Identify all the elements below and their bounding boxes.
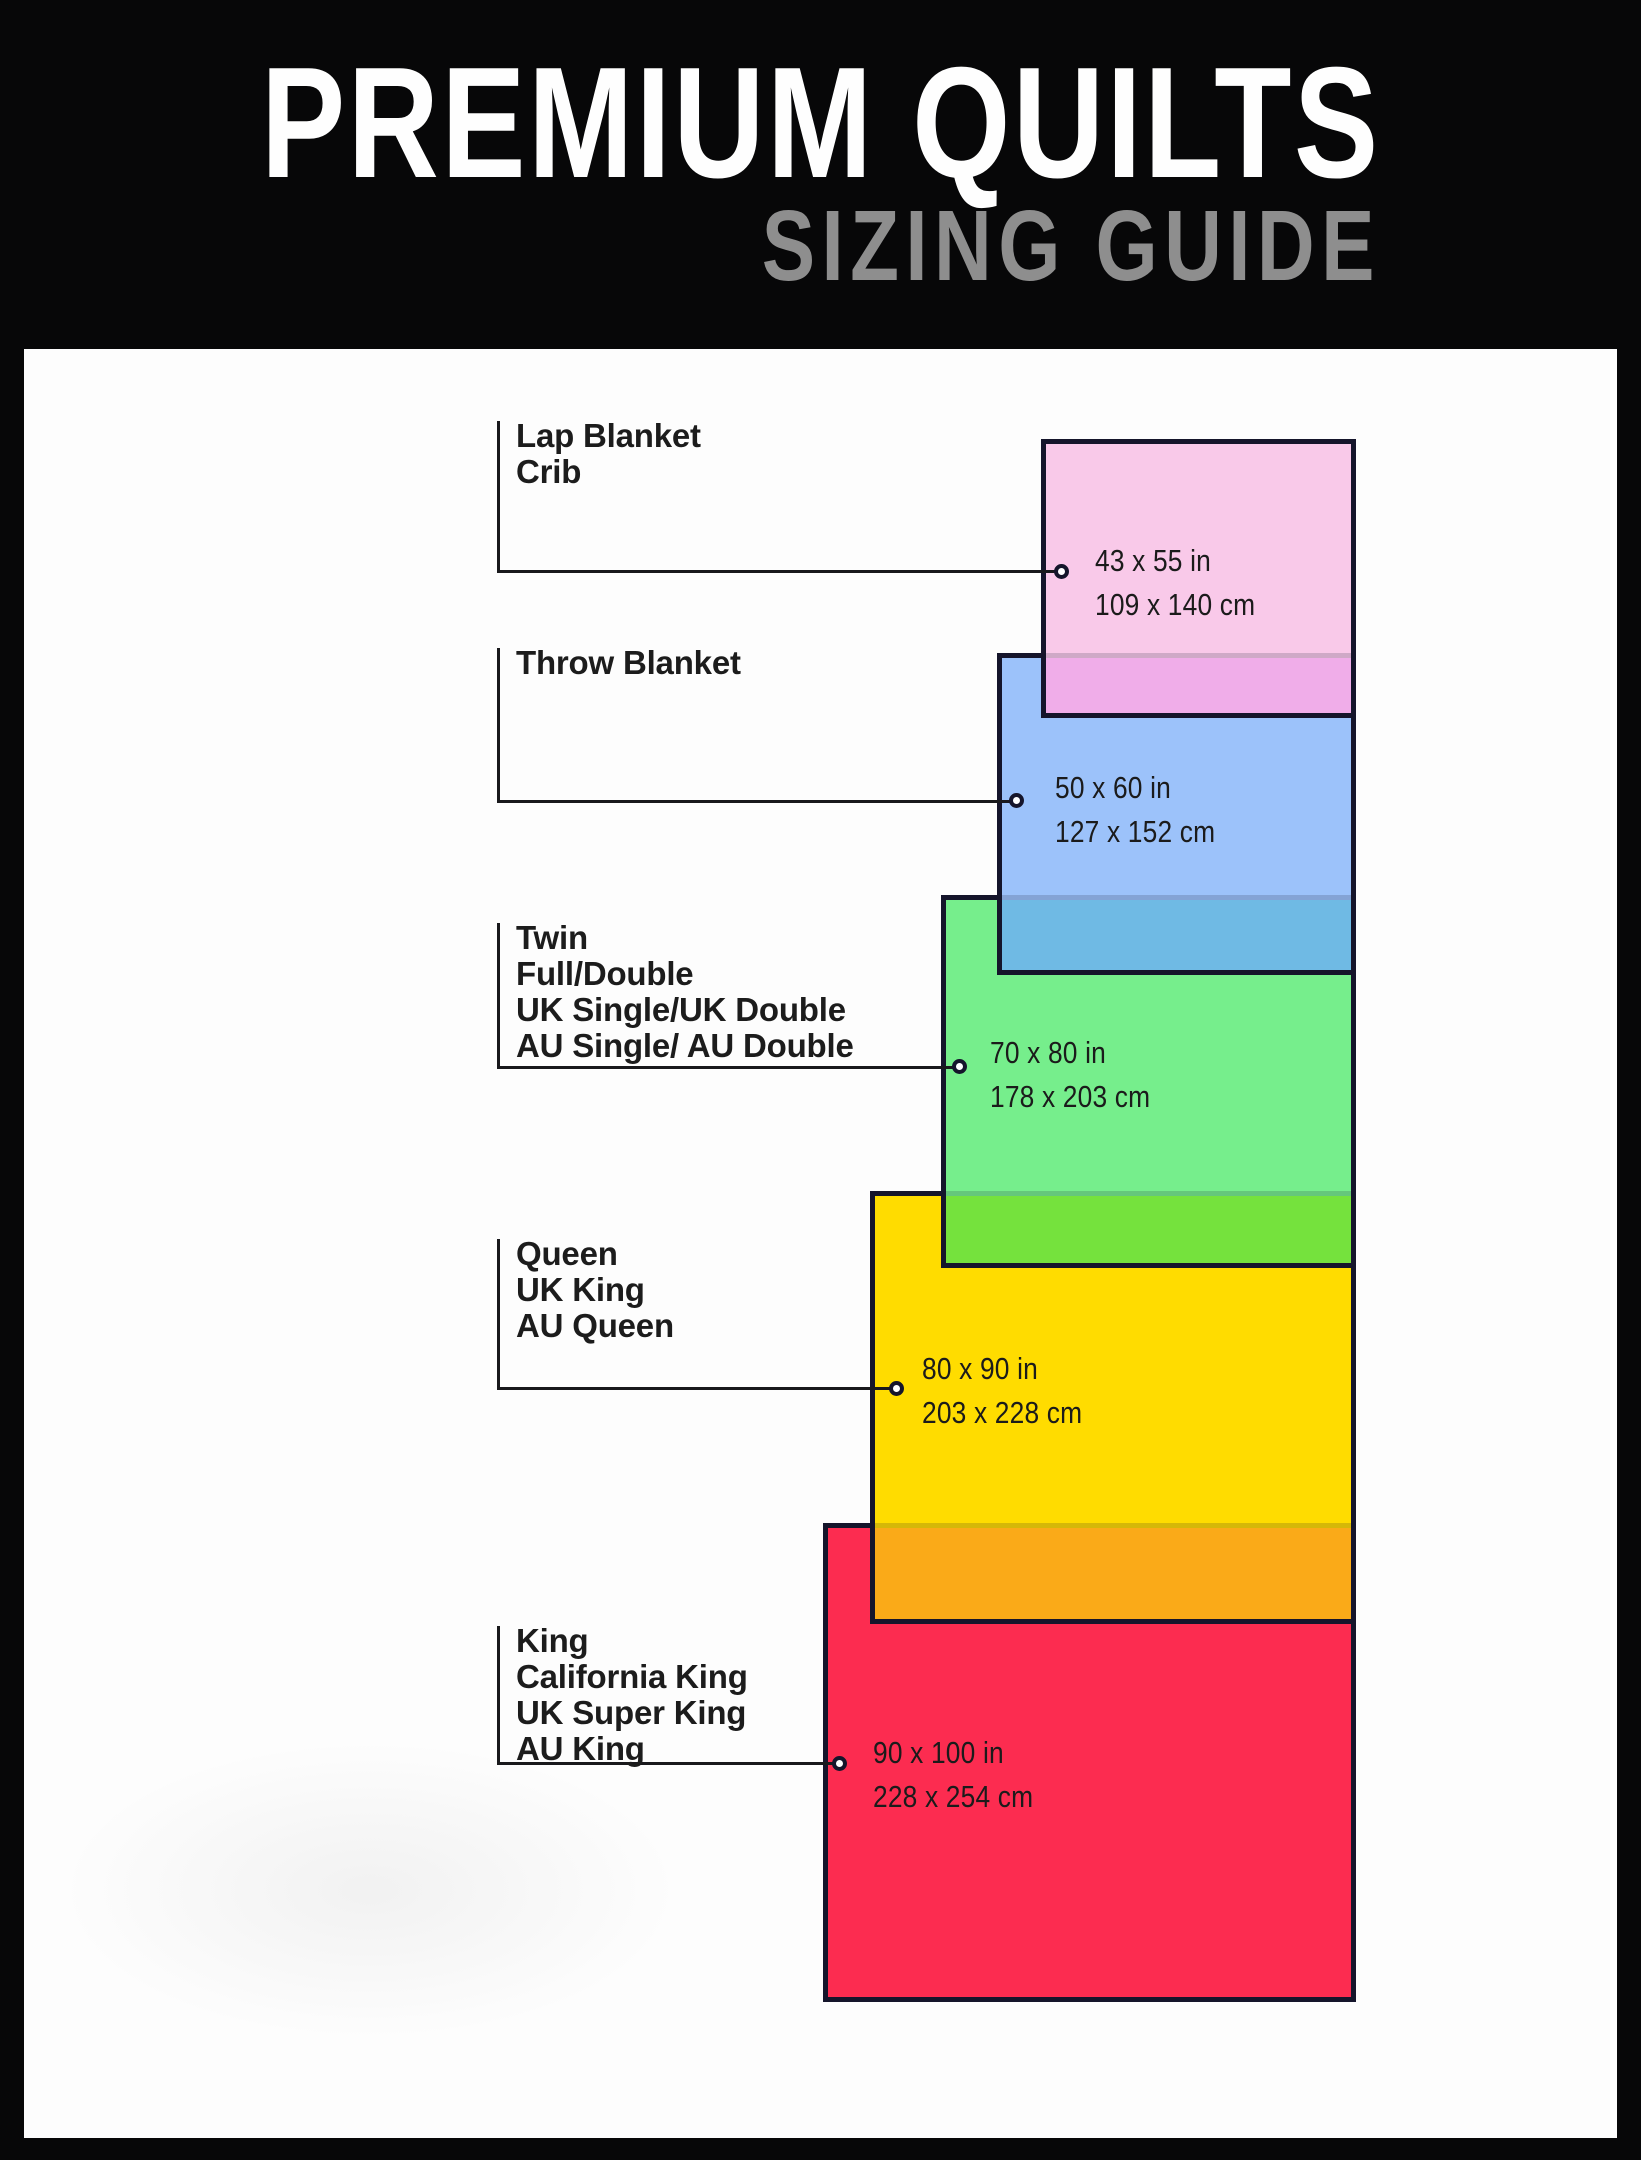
diagram-panel [24, 349, 1617, 2138]
size-label-queen: Queen UK King AU Queen [516, 1236, 674, 1344]
size-measure-king: 90 x 100 in 228 x 254 cm [873, 1731, 1033, 1819]
size-measure-lap: 43 x 55 in 109 x 140 cm [1095, 539, 1255, 627]
size-label-line: Crib [516, 454, 701, 490]
page-title: PREMIUM QUILTS [261, 44, 1381, 202]
connector-vertical-throw [497, 648, 500, 802]
overlap-queen-over-king [875, 1523, 1351, 1619]
overlap-lap-over-throw [1046, 653, 1351, 713]
size-label-line: Throw Blanket [516, 645, 741, 681]
size-label-lap: Lap Blanket Crib [516, 418, 701, 490]
size-measure-throw: 50 x 60 in 127 x 152 cm [1055, 766, 1215, 854]
size-label-line: Twin [516, 920, 854, 956]
measure-cm: 109 x 140 cm [1095, 583, 1255, 627]
size-label-line: California King [516, 1659, 748, 1695]
size-label-line: AU Single/ AU Double [516, 1028, 854, 1064]
size-label-line: AU Queen [516, 1308, 674, 1344]
size-label-line: King [516, 1623, 748, 1659]
measure-inches: 43 x 55 in [1095, 539, 1255, 583]
size-measure-queen: 80 x 90 in 203 x 228 cm [922, 1347, 1082, 1435]
measure-cm: 203 x 228 cm [922, 1391, 1082, 1435]
size-label-line: UK King [516, 1272, 674, 1308]
overlap-throw-over-twin [1002, 895, 1351, 970]
connector-horizontal-throw [497, 800, 1019, 803]
measure-inches: 70 x 80 in [990, 1031, 1150, 1075]
size-label-line: AU King [516, 1731, 748, 1767]
measure-cm: 127 x 152 cm [1055, 810, 1215, 854]
connector-horizontal-twin [497, 1066, 962, 1069]
sizing-guide-infographic: PREMIUM QUILTS SIZING GUIDE Lap Blanket … [0, 0, 1641, 2160]
page-subtitle: SIZING GUIDE [762, 196, 1381, 296]
size-label-line: Lap Blanket [516, 418, 701, 454]
overlap-twin-over-queen [946, 1191, 1351, 1263]
connector-horizontal-lap [497, 570, 1064, 573]
connector-horizontal-queen [497, 1387, 899, 1390]
connector-vertical-queen [497, 1239, 500, 1389]
marker-dot-throw [1009, 793, 1024, 808]
size-label-throw: Throw Blanket [516, 645, 741, 681]
size-label-king: King California King UK Super King AU Ki… [516, 1623, 748, 1767]
measure-cm: 178 x 203 cm [990, 1075, 1150, 1119]
marker-dot-king [832, 1756, 847, 1771]
size-label-line: Full/Double [516, 956, 854, 992]
connector-vertical-twin [497, 923, 500, 1069]
size-measure-twin: 70 x 80 in 178 x 203 cm [990, 1031, 1150, 1119]
size-label-twin: Twin Full/Double UK Single/UK Double AU … [516, 920, 854, 1064]
size-label-line: UK Single/UK Double [516, 992, 854, 1028]
marker-dot-queen [889, 1381, 904, 1396]
marker-dot-lap [1054, 564, 1069, 579]
measure-inches: 50 x 60 in [1055, 766, 1215, 810]
size-label-line: Queen [516, 1236, 674, 1272]
measure-inches: 90 x 100 in [873, 1731, 1033, 1775]
measure-cm: 228 x 254 cm [873, 1775, 1033, 1819]
connector-vertical-lap [497, 421, 500, 572]
marker-dot-twin [952, 1059, 967, 1074]
size-label-line: UK Super King [516, 1695, 748, 1731]
connector-vertical-king [497, 1626, 500, 1764]
measure-inches: 80 x 90 in [922, 1347, 1082, 1391]
